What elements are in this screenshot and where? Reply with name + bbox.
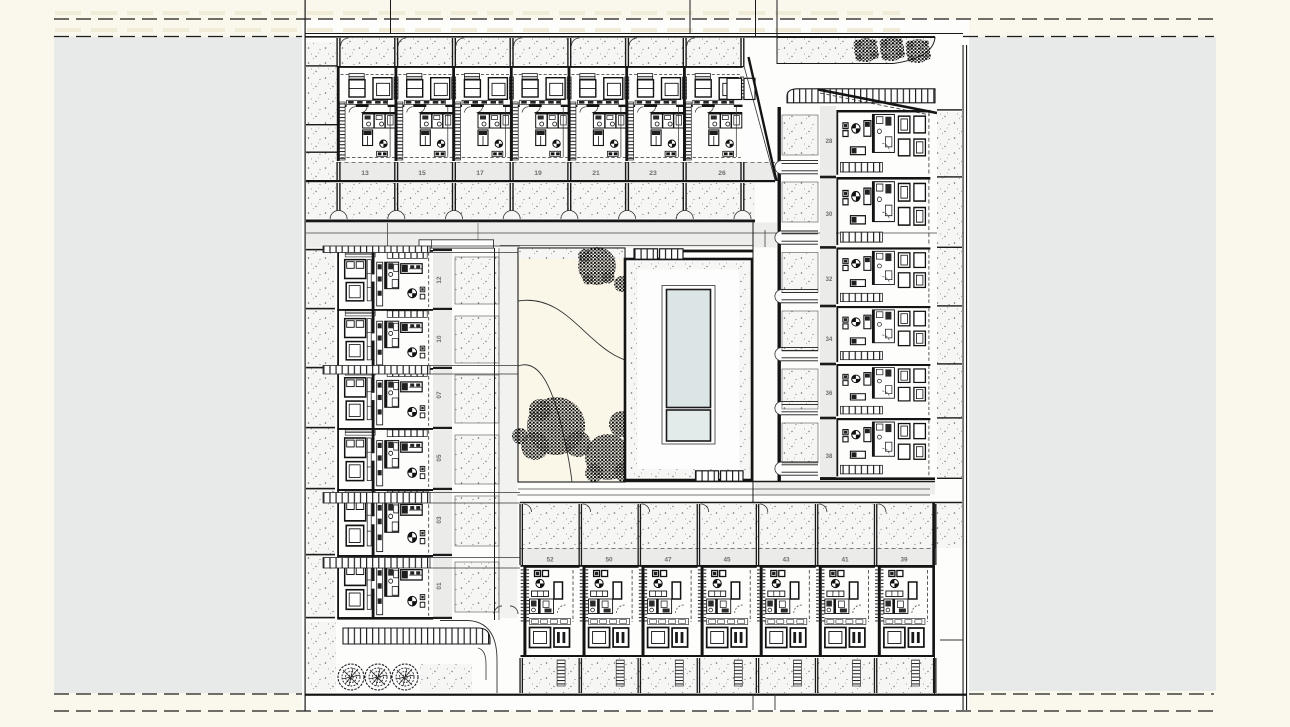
svg-text:39: 39 [900, 557, 908, 564]
svg-text:34: 34 [826, 337, 833, 343]
svg-text:07: 07 [436, 391, 443, 399]
svg-text:36: 36 [826, 391, 833, 397]
svg-text:52: 52 [546, 557, 554, 564]
svg-text:17: 17 [476, 170, 484, 177]
svg-text:23: 23 [649, 170, 657, 177]
svg-text:26: 26 [718, 170, 726, 177]
svg-text:03: 03 [436, 516, 443, 524]
svg-text:15: 15 [418, 170, 426, 177]
svg-text:38: 38 [826, 454, 833, 460]
svg-text:21: 21 [592, 170, 600, 177]
svg-text:28: 28 [826, 139, 833, 145]
svg-text:43: 43 [782, 557, 790, 564]
svg-text:05: 05 [436, 454, 443, 462]
svg-text:01: 01 [436, 582, 443, 590]
svg-text:12: 12 [436, 276, 443, 284]
svg-text:10: 10 [436, 335, 443, 343]
svg-text:13: 13 [361, 170, 369, 177]
svg-text:50: 50 [605, 557, 613, 564]
svg-text:47: 47 [664, 557, 672, 564]
svg-text:45: 45 [723, 557, 731, 564]
svg-text:30: 30 [826, 212, 833, 218]
svg-text:32: 32 [826, 277, 833, 283]
svg-text:19: 19 [534, 170, 542, 177]
svg-text:41: 41 [841, 557, 849, 564]
